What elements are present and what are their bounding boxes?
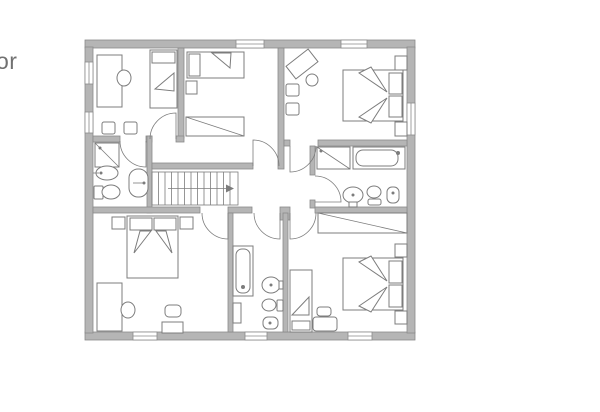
- outer-wall-right: [407, 47, 415, 333]
- wall-bedroom1-bedroom2: [178, 48, 184, 138]
- window-right-1: [407, 103, 415, 135]
- wall-bath2-bottom: [315, 207, 407, 213]
- toilet: [94, 185, 120, 199]
- chair: [165, 305, 181, 317]
- pillow: [389, 261, 402, 283]
- chair: [102, 122, 115, 134]
- single-bed: [290, 270, 312, 332]
- window-left-1: [85, 62, 93, 84]
- pillow: [154, 218, 176, 230]
- toilet: [262, 299, 283, 311]
- double-bed: [127, 216, 178, 278]
- window-bottom-1: [133, 332, 157, 340]
- outer-wall-left: [85, 47, 93, 333]
- faucet: [143, 182, 146, 185]
- window-bottom-3: [348, 332, 372, 340]
- faucet: [396, 151, 400, 155]
- table: [162, 322, 183, 333]
- nightstand: [395, 122, 407, 136]
- faucet: [349, 202, 357, 207]
- faucet: [100, 172, 103, 175]
- window-top-1: [236, 40, 264, 48]
- wardrobe: [318, 213, 407, 233]
- wall-bath3-right: [283, 213, 288, 332]
- pillow: [389, 96, 402, 117]
- chair: [286, 103, 299, 115]
- wall-bedroom1-bottom: [176, 136, 184, 142]
- bidet: [387, 187, 399, 203]
- toilet: [367, 186, 381, 205]
- pillow: [152, 52, 175, 63]
- wall-bath2-left-b: [310, 200, 315, 208]
- single-bed: [187, 52, 244, 78]
- wall-bedroom2-bedroom3: [278, 48, 284, 169]
- wall-bedroom3-bottom-a: [284, 140, 290, 146]
- desk-chair: [121, 302, 135, 318]
- shower: [317, 147, 350, 169]
- drain: [241, 285, 245, 289]
- chair: [124, 122, 137, 134]
- shower-head: [320, 150, 323, 153]
- single-bed: [150, 50, 177, 108]
- wall-bath3-left: [228, 213, 233, 332]
- wall-above-stairs: [152, 163, 253, 169]
- desk-chair: [306, 74, 318, 86]
- table: [313, 317, 337, 331]
- pillow: [130, 218, 152, 230]
- bathtub: [233, 246, 253, 296]
- nightstand: [180, 217, 193, 229]
- wall-hall-bottom-b: [228, 207, 252, 213]
- nightstand: [395, 244, 407, 257]
- window-top-2: [341, 40, 367, 48]
- wall-bedroom3-bottom-b: [318, 140, 407, 146]
- pillow: [389, 285, 402, 307]
- bidet: [263, 317, 278, 329]
- shelf: [233, 303, 241, 323]
- nightstand: [395, 56, 407, 70]
- double-bed: [343, 67, 403, 123]
- nightstand: [395, 311, 407, 324]
- bathtub: [353, 147, 405, 169]
- floorplan-drawing: [0, 0, 600, 412]
- double-bed: [343, 256, 403, 312]
- chair: [317, 307, 331, 316]
- shower: [95, 143, 119, 167]
- desk: [97, 283, 122, 331]
- wall-hall-bottom-a: [93, 207, 200, 213]
- bidet: [129, 169, 148, 197]
- wall-bath2-left-a: [310, 146, 315, 175]
- nightstand: [112, 217, 125, 229]
- shower-head: [99, 147, 102, 150]
- desk-chair: [117, 70, 131, 86]
- nightstand: [186, 81, 197, 94]
- pillow: [389, 73, 402, 94]
- faucet: [279, 281, 283, 289]
- floorplan-canvas: or: [0, 0, 600, 412]
- wardrobe: [186, 117, 244, 136]
- window-left-2: [85, 112, 93, 133]
- pillow: [189, 54, 200, 76]
- window-bottom-2: [245, 332, 267, 340]
- pillow: [292, 321, 310, 330]
- wall-bath1-top-a: [93, 136, 120, 142]
- chair: [286, 84, 299, 96]
